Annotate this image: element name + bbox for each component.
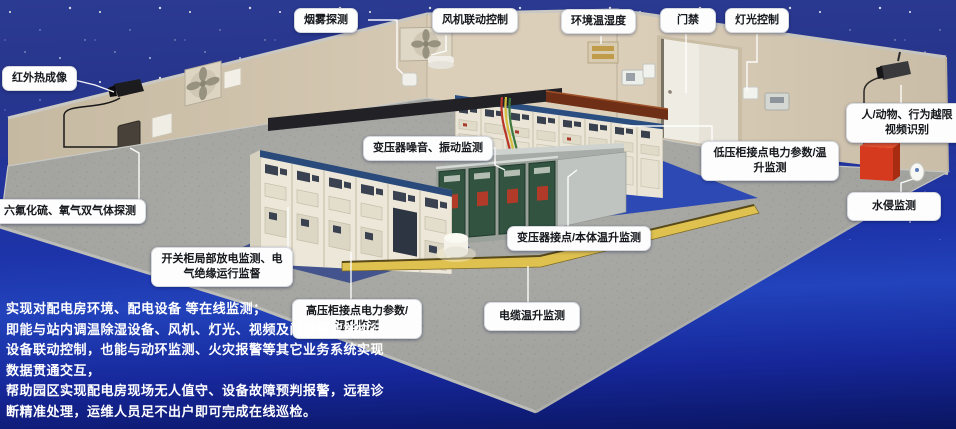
door <box>657 35 742 151</box>
callout-sf6-o2-gas-detection: 六氟化硫、氧气双气体探测 <box>0 199 146 224</box>
description-line: 数据贯通交互， <box>6 361 384 382</box>
water-sensor-icon <box>910 163 924 181</box>
humidity-sensor-icon <box>588 42 618 63</box>
smoke-detector-icon <box>402 73 417 86</box>
access-reader-icon <box>643 64 655 78</box>
callout-access-control: 门禁 <box>660 8 716 33</box>
callout-env-temp-humidity: 环境温湿度 <box>561 9 636 34</box>
description-line: 帮助园区实现配电房现场无人值守、设备故障预判报警，远程诊 <box>6 381 384 402</box>
callout-lighting-control: 灯光控制 <box>725 8 789 33</box>
callout-transformer-contact-temp: 变压器接点/本体温升监测 <box>507 226 651 251</box>
light-switch-icon <box>743 87 758 99</box>
thermostat-icon <box>622 70 644 85</box>
wall-box-icon <box>224 68 241 89</box>
callout-fan-linkage-control: 风机联动控制 <box>432 8 518 33</box>
callout-person-animal-video: 人/动物、行为越限视频识别 <box>846 103 956 143</box>
description-line: 设备联动控制，也能与动环监测、火灾报警等其它业务系统实现 <box>6 340 384 361</box>
description-line: 断精准处理，运维人员足不出户即可完成在线巡检。 <box>6 402 384 423</box>
callout-partial-discharge: 开关柜局部放电监测、电气绝缘运行监督 <box>151 247 293 287</box>
callout-lv-cabinet-power-temp: 低压柜接点电力参数/温升监测 <box>701 141 839 181</box>
description-text: 实现对配电房环境、配电设备 等在线监测； 即能与站内调温除湿设备、风机、灯光、视… <box>6 299 384 422</box>
distribution-room-illustration: 烟雾探测 风机联动控制 环境温湿度 门禁 灯光控制 红外热成像 六氟化硫、氧气双… <box>0 0 956 429</box>
callout-cable-temp: 电缆温升监测 <box>484 302 580 331</box>
wall-sensor-box-icon <box>152 113 172 138</box>
callout-water-intrusion: 水侵监测 <box>847 192 941 221</box>
dome-camera-base <box>428 61 454 69</box>
wall-controller-icon <box>765 93 789 110</box>
description-line: 实现对配电房环境、配电设备 等在线监测； <box>6 299 384 320</box>
description-line: 即能与站内调温除湿设备、风机、灯光、视频及门禁等智能执行 <box>6 320 384 341</box>
fire-cabinet-icon <box>860 141 900 181</box>
callout-transformer-noise: 变压器噪音、振动监测 <box>363 136 493 161</box>
callout-smoke-detection: 烟雾探测 <box>294 8 358 33</box>
callout-infrared-thermal-imaging: 红外热成像 <box>2 66 77 91</box>
